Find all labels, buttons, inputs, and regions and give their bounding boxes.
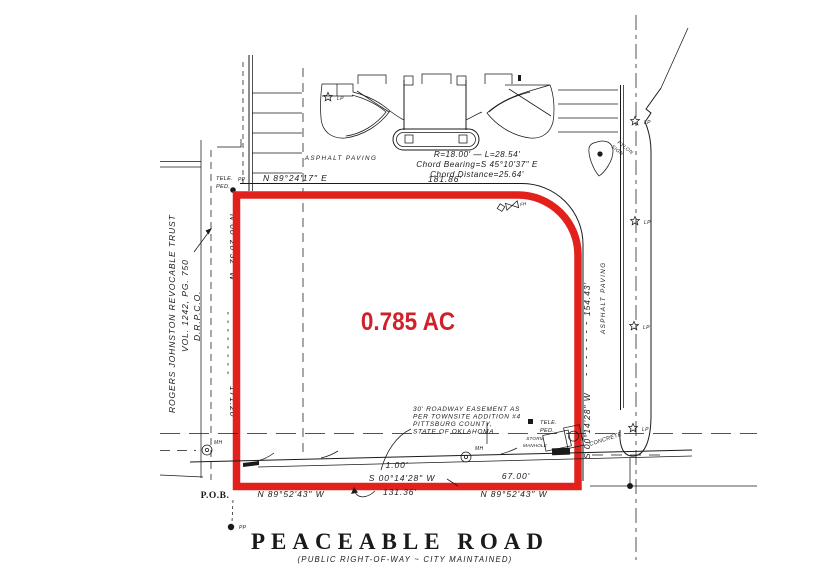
storm-label: STORM (526, 436, 544, 441)
lp-label: LP (644, 120, 651, 126)
power-pole-south: PP (228, 500, 247, 531)
pump-base (459, 135, 467, 143)
north-bearing: N 89°24'17" E (263, 173, 328, 183)
jog-distance: 1.00' (386, 460, 409, 470)
light-pole-icon (324, 92, 333, 100)
left-island (321, 84, 390, 138)
curve-chord-bearing: Chord Bearing=S 45°10'37" E (416, 160, 538, 169)
curve-radius-length: R=18.00' — L=28.54' (434, 150, 520, 159)
survey-plat-canvas: ROGERS JOHNSTON REVOCABLE TRUST VOL. 124… (0, 0, 831, 588)
plat-drawing: ROGERS JOHNSTON REVOCABLE TRUST VOL. 124… (0, 0, 831, 588)
mh-label: MH (214, 440, 222, 446)
parcel-area-label: 0.785 AC (361, 308, 455, 336)
asphalt-paving-label: ASPHALT PAVING (304, 155, 378, 162)
canopy-column (404, 76, 413, 85)
manhole-icon (461, 452, 471, 462)
tele-ped-label: TELE. (216, 176, 233, 182)
lp-label: LP (644, 220, 651, 226)
light-pole-icon (630, 321, 639, 329)
curb-wedge (243, 461, 259, 467)
driveway-return (321, 451, 338, 458)
neighbor-volume: VOL. 1242, PG. 750 (180, 259, 190, 352)
pylon-sign-icon (597, 151, 602, 156)
road-subtitle: (PUBLIC RIGHT-OF-WAY ~ CITY MAINTAINED) (298, 555, 513, 564)
driveway-return (501, 448, 517, 454)
canopy-column (457, 76, 466, 85)
curb-bracket (358, 75, 386, 84)
water-valve-icon (506, 202, 513, 210)
curb-bracket (485, 74, 512, 84)
east-bearing: S 00°14'28" W (582, 392, 592, 459)
building-canopy-site: LP (321, 74, 554, 150)
jog-bearing: S 00°14'28" W (369, 473, 436, 483)
storm-label: MANHOLE (523, 443, 548, 448)
easement-line2: PER TOWNSITE ADDITION #4 (413, 414, 521, 421)
light-pole-icon (631, 216, 640, 224)
tele-pedestal-northwest: TELE. PED. PP (216, 176, 246, 193)
curb-line-north (190, 450, 692, 462)
south-left-distance: 131.36' (383, 487, 417, 497)
pp-label: PP (238, 177, 246, 183)
road-name: PEACEABLE ROAD (251, 529, 549, 554)
fh-label: FH (520, 201, 528, 207)
lp-label: LP (642, 427, 649, 433)
curb-wedge (552, 448, 570, 456)
mh-label: MH (475, 446, 483, 452)
manhole-west: MH (202, 440, 222, 455)
power-pole-icon (627, 483, 633, 489)
easement-line1: 30' ROADWAY EASEMENT AS (413, 406, 520, 413)
power-pole-icon (228, 524, 234, 530)
road-edge-east (620, 88, 661, 456)
easement-line3: PITTSBURG COUNTY, (413, 421, 493, 428)
south-right-bearing: N 89°52'43" W (481, 489, 548, 499)
manhole-center: MH (461, 446, 483, 462)
pump-base (405, 135, 413, 143)
tele-ped-label: TELE. (540, 420, 557, 426)
tele-ped-icon (528, 419, 533, 424)
water-valve-icon (511, 201, 518, 209)
asphalt-paving-label-east: ASPHALT PAVING (600, 261, 607, 335)
tele-ped-label: PED. (216, 184, 230, 190)
arrowhead (206, 228, 213, 235)
pob-label: P.O.B. (201, 491, 230, 501)
manhole-icon (202, 445, 212, 455)
south-right-distance: 67.00' (502, 471, 530, 481)
curb-bracket (422, 74, 451, 84)
road-title-block: PEACEABLE ROAD (PUBLIC RIGHT-OF-WAY ~ CI… (251, 529, 549, 564)
lp-label: LP (643, 325, 650, 331)
tele-ped-label: PED. (540, 428, 554, 434)
east-distance: 154.43' (582, 282, 592, 316)
easement-line4: STATE OF OKLAHOMA (413, 429, 494, 436)
light-pole-icon (631, 116, 640, 124)
neighbor-record: D.R.P.C.O. (192, 291, 202, 341)
parking-stalls-west (243, 55, 302, 191)
south-dimensions: 1.00' S 00°14'28" W 67.00' P.O.B. N 89°5… (201, 460, 548, 501)
pp-label: PP (239, 525, 247, 531)
tele-pedestal-southeast: TELE. PED. (528, 419, 557, 434)
north-distance: 181.86' (428, 174, 462, 184)
neighbor-name: ROGERS JOHNSTON REVOCABLE TRUST (167, 214, 177, 413)
hydrant-icon (497, 204, 505, 212)
concrete-label: CONCRETE (589, 432, 623, 448)
lp-label: LP (337, 96, 344, 102)
pylon-sign: PYLON SIGN (589, 139, 634, 176)
south-left-bearing: N 89°52'43" W (258, 489, 325, 499)
neighbor-owner-text: ROGERS JOHNSTON REVOCABLE TRUST VOL. 124… (167, 214, 202, 413)
pylon-sign-island (589, 141, 613, 176)
